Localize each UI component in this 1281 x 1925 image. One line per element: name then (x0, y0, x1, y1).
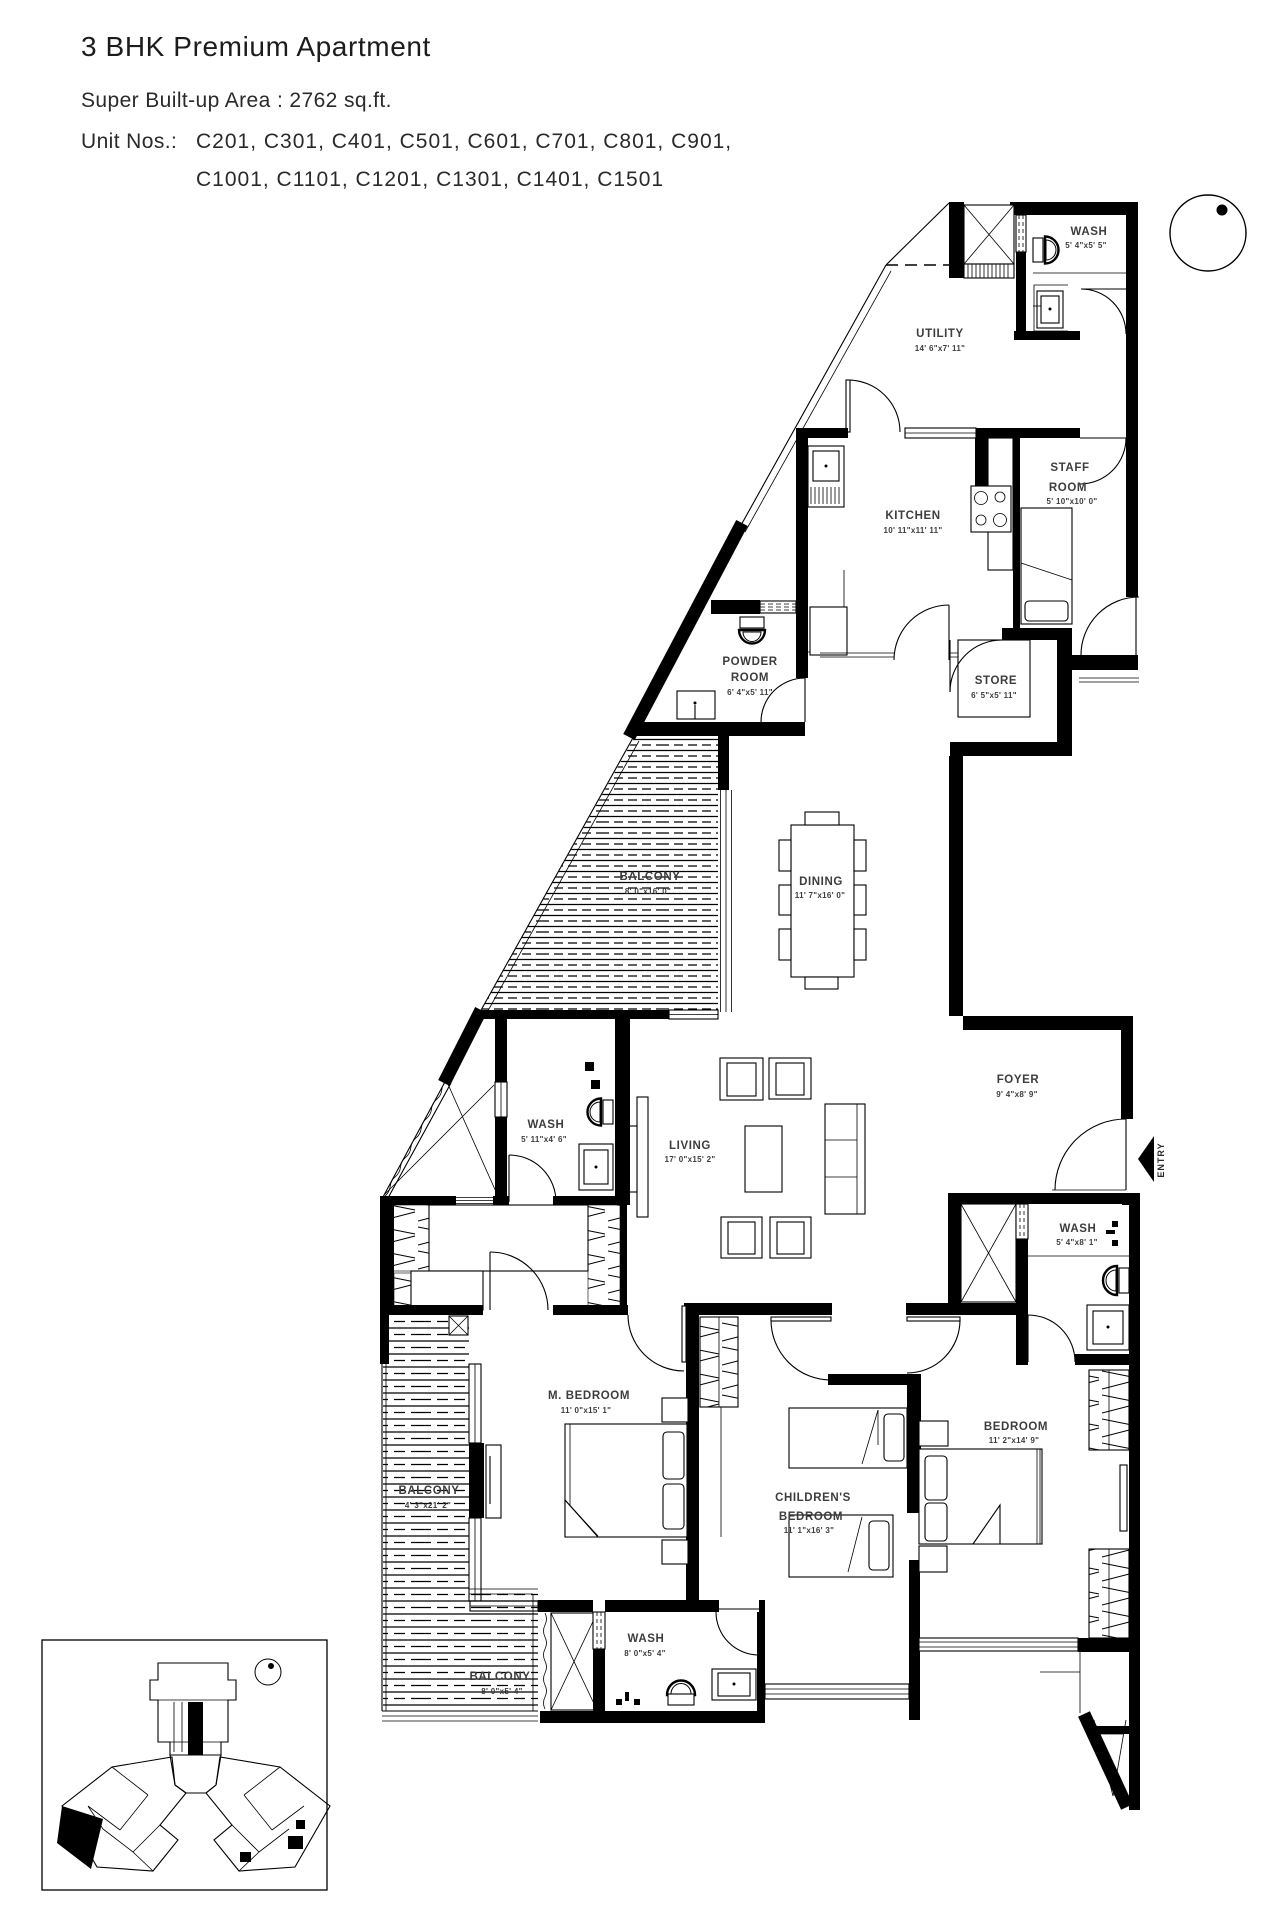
svg-text:Super Built-up Area : 2762 sq.: Super Built-up Area : 2762 sq.ft. (81, 89, 392, 112)
svg-text:FOYER: FOYER (997, 1074, 1040, 1086)
svg-text:11' 0"x15' 1": 11' 0"x15' 1" (561, 1406, 611, 1415)
svg-text:14' 6"x7' 11": 14' 6"x7' 11" (915, 344, 965, 353)
svg-text:WASH: WASH (1060, 1223, 1097, 1235)
svg-text:6' 4"x5' 11": 6' 4"x5' 11" (727, 688, 773, 697)
svg-text:4' 3"x21' 2": 4' 3"x21' 2" (405, 1501, 451, 1510)
svg-text:5' 10"x10' 0": 5' 10"x10' 0" (1047, 497, 1098, 506)
svg-text:10' 11"x11' 11": 10' 11"x11' 11" (883, 526, 942, 535)
svg-text:8' 0"x5' 4": 8' 0"x5' 4" (624, 1649, 665, 1658)
svg-text:WASH: WASH (528, 1119, 565, 1131)
svg-text:8' 0"x16' 0": 8' 0"x16' 0" (625, 887, 671, 896)
svg-text:BALCONY: BALCONY (619, 871, 680, 883)
svg-text:ROOM: ROOM (731, 672, 769, 684)
svg-text:8' 0"x5' 4": 8' 0"x5' 4" (481, 1687, 522, 1696)
svg-text:WASH: WASH (1071, 226, 1108, 238)
svg-text:POWDER: POWDER (722, 656, 777, 668)
svg-text:5' 11"x4' 6": 5' 11"x4' 6" (521, 1135, 567, 1144)
svg-text:BALCONY: BALCONY (398, 1485, 459, 1497)
svg-text:5' 4"x5' 5": 5' 4"x5' 5" (1065, 241, 1106, 250)
svg-text:C1001, C1101, C1201, C1301, C1: C1001, C1101, C1201, C1301, C1401, C1501 (196, 168, 664, 191)
svg-text:BEDROOM: BEDROOM (779, 1511, 843, 1523)
svg-text:BEDROOM: BEDROOM (984, 1421, 1048, 1433)
svg-text:WASH: WASH (628, 1633, 665, 1645)
svg-text:STAFF: STAFF (1050, 462, 1089, 474)
svg-text:11' 2"x14' 9": 11' 2"x14' 9" (989, 1436, 1039, 1445)
svg-text:DINING: DINING (799, 876, 843, 888)
svg-text:LIVING: LIVING (669, 1140, 711, 1152)
svg-text:11' 1"x16' 3": 11' 1"x16' 3" (784, 1526, 834, 1535)
svg-text:11' 7"x16' 0": 11' 7"x16' 0" (795, 891, 845, 900)
svg-text:5' 4"x8' 1": 5' 4"x8' 1" (1056, 1238, 1097, 1247)
svg-text:ENTRY: ENTRY (1156, 1142, 1166, 1177)
svg-text:3 BHK Premium Apartment: 3 BHK Premium Apartment (81, 31, 431, 62)
svg-text:6' 5"x5' 11": 6' 5"x5' 11" (971, 691, 1017, 700)
svg-text:UTILITY: UTILITY (916, 328, 964, 340)
svg-text:KITCHEN: KITCHEN (885, 510, 940, 522)
svg-text:BALCONY: BALCONY (469, 1671, 530, 1683)
svg-text:9' 4"x8' 9": 9' 4"x8' 9" (996, 1090, 1037, 1099)
svg-text:ROOM: ROOM (1049, 482, 1087, 494)
svg-text:M. BEDROOM: M. BEDROOM (548, 1390, 630, 1402)
svg-text:CHILDREN'S: CHILDREN'S (775, 1492, 851, 1504)
svg-text:17' 0"x15' 2": 17' 0"x15' 2" (665, 1155, 716, 1164)
svg-text:STORE: STORE (975, 675, 1017, 687)
